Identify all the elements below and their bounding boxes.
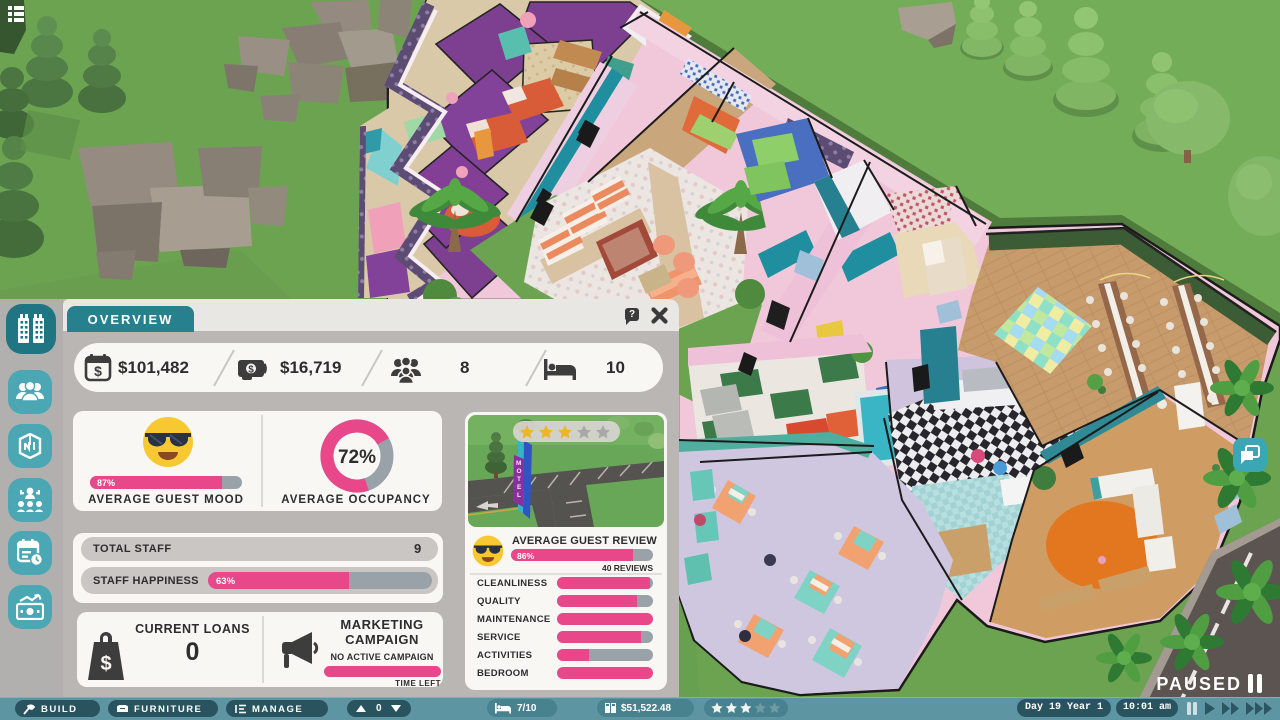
svg-text:$: $ (94, 363, 102, 379)
svg-text:O: O (517, 468, 522, 475)
svg-text:72%: 72% (338, 447, 376, 468)
svg-text:$: $ (248, 365, 254, 376)
svg-text:L: L (517, 492, 521, 499)
svg-text:M: M (516, 460, 521, 467)
svg-text:T: T (517, 476, 521, 483)
svg-text:$: $ (100, 653, 111, 675)
svg-text:E: E (517, 484, 522, 491)
